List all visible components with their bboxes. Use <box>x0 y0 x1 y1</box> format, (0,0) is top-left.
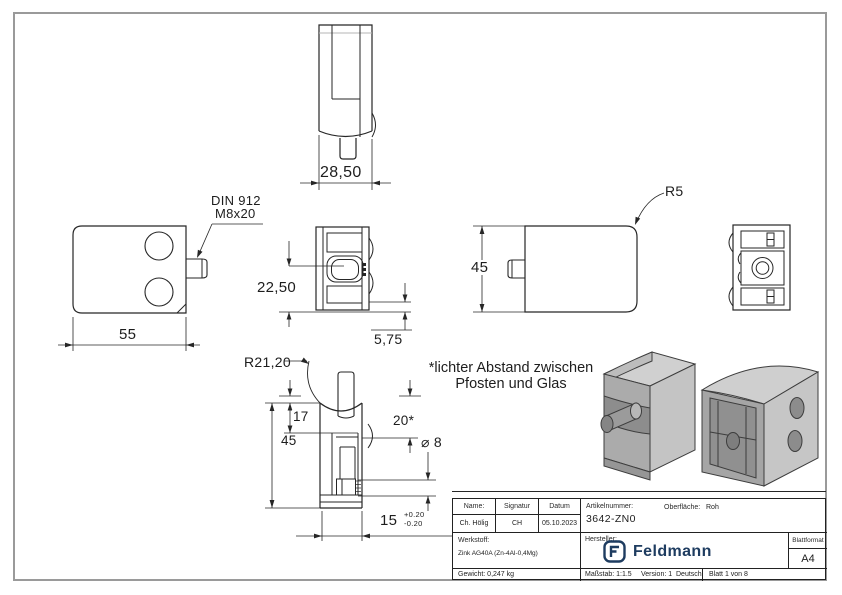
brand-logo: Feldmann <box>603 540 712 563</box>
material-value: Zink AG40A (Zn-4Al-0,4Mg) <box>458 550 538 557</box>
surface-value: Roh <box>706 504 719 511</box>
signature-value: CH <box>512 520 522 527</box>
dim-body-width: 55 <box>119 327 136 342</box>
name-value: Ch. Hölig <box>460 520 489 527</box>
version-value: Version: 1 <box>641 571 672 578</box>
screw-note-line2: M8x20 <box>215 207 256 220</box>
sheet-value: Blatt 1 von 8 <box>709 571 748 578</box>
iso-view-open <box>702 366 818 486</box>
dim-offset: 5,75 <box>374 332 402 346</box>
scale-value: Maßstab: 1:1.5 <box>585 571 632 578</box>
dim-center-height: 22,50 <box>257 280 296 295</box>
drawing-sheet: 28,50 DIN 912 M8x20 55 22,50 5,75 R5 45 … <box>0 0 842 595</box>
front-left-view <box>58 224 263 351</box>
feldmann-logo-icon <box>603 540 626 563</box>
dim-top-offset: 17 <box>292 410 310 424</box>
dim-top-view-width: 28,50 <box>320 165 362 181</box>
date-value: 05.10.2023 <box>542 520 577 527</box>
dim-corner-radius: R5 <box>665 184 684 198</box>
side-view <box>473 193 664 312</box>
iso-view-assembled <box>601 352 695 480</box>
dim-post-radius: R21,20 <box>244 355 291 369</box>
date-label: Datum <box>549 503 570 510</box>
article-number: 3642-ZN0 <box>586 513 636 525</box>
surface-label: Oberfläche: <box>664 504 700 511</box>
name-label: Name: <box>464 503 485 510</box>
dim-hole-diameter: ⌀ 8 <box>421 435 442 449</box>
dim-tolerance-minus: -0.20 <box>404 520 423 528</box>
dim-side-height: 45 <box>470 260 489 275</box>
brand-name: Feldmann <box>633 543 712 561</box>
clearance-note-line1: *lichter Abstand zwischen <box>413 361 609 376</box>
weight-value: Gewicht: 0,247 kg <box>458 571 514 578</box>
signature-label: Signatur <box>504 503 530 510</box>
format-label: Blattformat <box>792 537 823 544</box>
dim-tolerance-plus: +0.20 <box>404 511 424 519</box>
article-label: Artikelnummer: <box>586 503 633 510</box>
dim-slot-width: 15 <box>380 513 397 528</box>
dim-clearance: 20* <box>393 414 414 428</box>
back-view <box>729 225 790 310</box>
clearance-note-line2: Pfosten und Glas <box>413 377 609 392</box>
title-block: Name: Signatur Datum Ch. Hölig CH 05.10.… <box>452 498 826 580</box>
dim-section-height: 45 <box>280 434 298 448</box>
material-label: Werkstoff: <box>458 537 489 544</box>
front-view <box>279 227 412 330</box>
format-value: A4 <box>801 553 814 565</box>
page-frame <box>14 13 826 580</box>
language-value: Deutsch <box>676 571 702 578</box>
